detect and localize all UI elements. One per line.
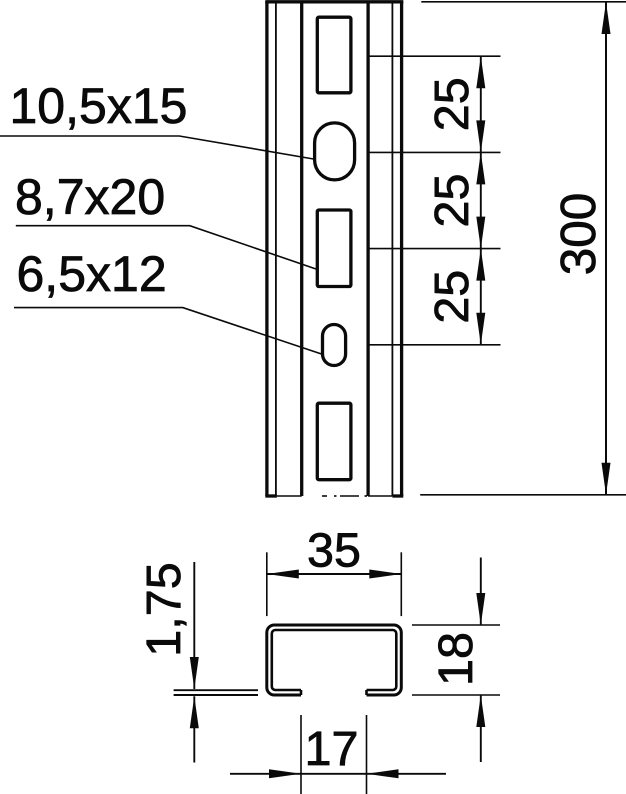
svg-text:10,5x15: 10,5x15 [10,78,188,134]
svg-text:25: 25 [425,174,479,228]
svg-text:300: 300 [551,193,606,276]
svg-text:25: 25 [425,77,479,131]
svg-text:6,5x12: 6,5x12 [17,246,167,302]
svg-text:8,7x20: 8,7x20 [15,169,165,225]
svg-text:1,75: 1,75 [137,562,191,656]
svg-text:35: 35 [307,524,361,578]
svg-text:17: 17 [305,722,359,776]
svg-text:25: 25 [425,270,479,324]
svg-text:18: 18 [429,632,483,686]
